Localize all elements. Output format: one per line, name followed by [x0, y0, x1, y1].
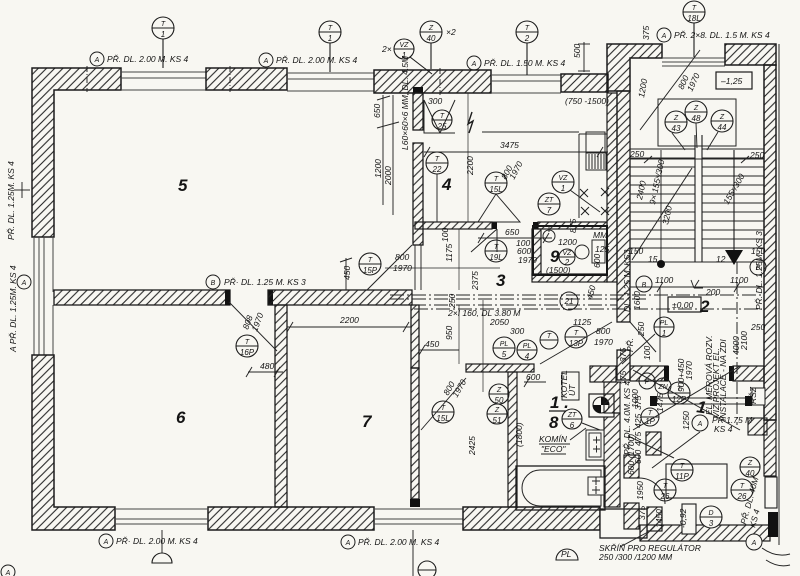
svg-text:T: T — [648, 410, 653, 417]
svg-text:A PŘ. DL. 1.25M. KS 4: A PŘ. DL. 1.25M. KS 4 — [8, 265, 18, 353]
svg-text:16P: 16P — [240, 348, 255, 357]
svg-text:425: 425 — [633, 414, 643, 428]
svg-text:Z: Z — [428, 25, 434, 32]
svg-text:2375: 2375 — [470, 271, 480, 291]
svg-text:3: 3 — [496, 271, 506, 290]
svg-text:250: 250 — [629, 149, 644, 159]
svg-text:PL: PL — [523, 343, 532, 350]
svg-text:7: 7 — [547, 206, 552, 215]
svg-text:18L: 18L — [687, 14, 700, 23]
svg-text:D: D — [708, 510, 713, 517]
svg-text:2: 2 — [524, 34, 530, 43]
svg-text:PL: PL — [660, 320, 669, 327]
svg-text:PŘ. DL. 1.50 M. KS 4: PŘ. DL. 1.50 M. KS 4 — [484, 58, 566, 68]
svg-text:PŘ. DL. 1.25M. KS 4: PŘ. DL. 1.25M. KS 4 — [6, 161, 16, 240]
svg-text:51: 51 — [493, 416, 502, 425]
svg-text:3: 3 — [709, 519, 714, 528]
svg-text:5: 5 — [502, 350, 507, 359]
svg-text:300: 300 — [428, 96, 442, 106]
svg-text:2200: 2200 — [339, 315, 359, 325]
svg-text:PŘ· DL. 1.25 M. KS 3: PŘ· DL. 1.25 M. KS 3 — [224, 277, 306, 287]
svg-text:1950: 1950 — [635, 481, 645, 500]
svg-text:15L: 15L — [436, 414, 449, 423]
svg-text:4: 4 — [441, 175, 452, 194]
svg-text:1600: 1600 — [632, 291, 642, 310]
svg-text:T: T — [547, 333, 552, 340]
svg-text:600: 600 — [526, 372, 540, 382]
svg-text:(750 -1500): (750 -1500) — [565, 96, 609, 106]
svg-text:B: B — [211, 280, 216, 287]
svg-text:T: T — [494, 244, 499, 251]
svg-text:Z: Z — [494, 407, 500, 414]
svg-text:375: 375 — [637, 506, 647, 520]
svg-text:T: T — [245, 339, 250, 346]
svg-text:100: 100 — [642, 346, 652, 360]
svg-text:15P: 15P — [363, 266, 378, 275]
svg-text:A: A — [471, 61, 477, 68]
svg-text:Z: Z — [719, 114, 725, 121]
svg-text:ZT: ZT — [567, 412, 577, 419]
svg-text:6: 6 — [570, 421, 575, 430]
svg-text:2×: 2× — [381, 44, 392, 54]
svg-text:375: 375 — [618, 348, 628, 362]
svg-text:A: A — [661, 33, 667, 40]
svg-text:T: T — [574, 330, 579, 337]
svg-text:PŘ. DL. 2.00 M. KS 4: PŘ. DL. 2.00 M. KS 4 — [358, 537, 440, 547]
svg-text:1250: 1250 — [681, 411, 691, 430]
svg-text:VZ: VZ — [563, 250, 573, 257]
svg-text:A: A — [5, 570, 11, 576]
svg-text:T: T — [161, 21, 166, 28]
svg-text:125: 125 — [595, 244, 609, 254]
svg-text:1450: 1450 — [654, 509, 664, 528]
svg-text:450: 450 — [342, 266, 352, 280]
svg-text:2050: 2050 — [489, 317, 509, 327]
svg-text:8: 8 — [549, 413, 559, 432]
svg-text:T: T — [740, 483, 745, 490]
svg-text:KS 4: KS 4 — [714, 424, 733, 434]
svg-text:Z: Z — [496, 387, 502, 394]
svg-text:21: 21 — [564, 297, 574, 306]
svg-text:A: A — [345, 540, 351, 547]
svg-text:"ECO": "ECO" — [541, 444, 566, 454]
svg-text:4: 4 — [525, 352, 530, 361]
svg-text:875: 875 — [568, 219, 578, 233]
svg-text:43: 43 — [672, 124, 681, 133]
svg-text:1200: 1200 — [558, 237, 577, 247]
svg-text:1175: 1175 — [444, 243, 454, 262]
svg-text:T: T — [440, 113, 445, 120]
svg-text:A: A — [94, 57, 100, 64]
svg-text:KOMÍN: KOMÍN — [539, 434, 568, 444]
svg-text:2425: 2425 — [467, 436, 477, 456]
svg-text:PŘ. DL. 1.25M. KS 3: PŘ. DL. 1.25M. KS 3 — [754, 231, 764, 310]
svg-text:2: 2 — [564, 258, 570, 267]
svg-text:26: 26 — [660, 492, 670, 501]
svg-text:-0,92: -0,92 — [678, 508, 688, 528]
svg-text:9: 9 — [550, 247, 560, 266]
svg-text:×2: ×2 — [446, 27, 456, 37]
svg-text:(1800): (1800) — [514, 422, 524, 447]
svg-text:T: T — [328, 25, 333, 32]
svg-text:7: 7 — [362, 412, 373, 431]
svg-text:Z: Z — [693, 105, 699, 112]
svg-text:1: 1 — [328, 34, 332, 43]
svg-text:19L: 19L — [489, 253, 502, 262]
svg-text:1970: 1970 — [518, 255, 537, 265]
svg-text:5: 5 — [178, 176, 188, 195]
svg-text:650: 650 — [505, 227, 519, 237]
svg-text:11P: 11P — [675, 472, 689, 481]
svg-text:40: 40 — [427, 34, 436, 43]
svg-text:1: 1 — [662, 329, 666, 338]
svg-text:100: 100 — [440, 228, 450, 242]
svg-text:DL. 1.25 M. KS3: DL. 1.25 M. KS3 — [622, 249, 632, 312]
svg-text:950: 950 — [444, 326, 454, 340]
svg-text:650: 650 — [372, 104, 382, 118]
svg-text:RŠZ: RŠZ — [748, 386, 758, 404]
svg-text:A: A — [263, 58, 269, 65]
svg-text:450: 450 — [425, 339, 439, 349]
svg-text:375: 375 — [633, 396, 643, 410]
svg-text:1100: 1100 — [730, 275, 749, 285]
svg-text:1: 1 — [561, 184, 565, 193]
svg-text:INSTALACE - NA ZDI: INSTALACE - NA ZDI — [718, 339, 728, 421]
svg-text:2×I 160, DL 3.80 M: 2×I 160, DL 3.80 M — [447, 308, 521, 318]
svg-text:PŘ. DL. 2.00 M. KS 4: PŘ. DL. 2.00 M. KS 4 — [107, 54, 189, 64]
svg-text:A: A — [697, 421, 703, 428]
svg-text:6: 6 — [176, 408, 186, 427]
svg-text:600: 600 — [592, 254, 602, 268]
svg-text:3475: 3475 — [500, 140, 519, 150]
svg-text:ÚT: ÚT — [567, 384, 577, 396]
svg-text:250: 250 — [749, 150, 764, 160]
svg-text:ZT: ZT — [544, 197, 554, 204]
svg-text:13P: 13P — [569, 339, 584, 348]
svg-text:T: T — [368, 257, 373, 264]
svg-text:15L: 15L — [489, 185, 502, 194]
svg-text:PL: PL — [561, 549, 572, 559]
svg-text:–1,25: –1,25 — [720, 76, 743, 86]
svg-text:12: 12 — [716, 254, 726, 264]
svg-text:2200: 2200 — [465, 156, 475, 176]
svg-text:50: 50 — [495, 396, 504, 405]
svg-text:VZ: VZ — [559, 175, 569, 182]
svg-text:15: 15 — [648, 254, 658, 264]
svg-text:2000: 2000 — [383, 166, 393, 186]
svg-text:44: 44 — [718, 123, 727, 132]
svg-text:1200: 1200 — [373, 159, 383, 178]
svg-text:150: 150 — [629, 246, 643, 256]
svg-text:PŘ. DL. 4.0M. KS 4: PŘ. DL. 4.0M. KS 4 — [622, 381, 632, 455]
svg-text:2100: 2100 — [739, 331, 749, 351]
svg-text:375: 375 — [641, 26, 651, 40]
svg-text:250: 250 — [447, 294, 457, 309]
svg-text:T: T — [525, 25, 530, 32]
svg-text:±0,00: ±0,00 — [672, 300, 693, 310]
svg-text:Z: Z — [673, 115, 679, 122]
svg-text:PŘ. DL. 2.00 M. KS 4: PŘ. DL. 2.00 M. KS 4 — [276, 55, 358, 65]
svg-text:A: A — [21, 280, 27, 287]
svg-text:L60×60×6 MM, DL. 4.5M: L60×60×6 MM, DL. 4.5M — [400, 55, 410, 150]
svg-text:VZ: VZ — [400, 42, 410, 49]
svg-text:22: 22 — [432, 165, 442, 174]
svg-text:1970: 1970 — [594, 337, 613, 347]
svg-text:480: 480 — [260, 361, 274, 371]
svg-text:250: 250 — [750, 322, 765, 332]
svg-text:Z: Z — [747, 460, 753, 467]
svg-text:T: T — [680, 463, 685, 470]
svg-text:T: T — [494, 176, 499, 183]
svg-text:B: B — [642, 282, 647, 289]
svg-text:1970: 1970 — [684, 361, 694, 380]
svg-text:48: 48 — [692, 114, 701, 123]
svg-text:500: 500 — [572, 44, 582, 58]
svg-text:T: T — [663, 483, 668, 490]
svg-text:PŘ· DL. 2.00 M. KS 4: PŘ· DL. 2.00 M. KS 4 — [116, 536, 198, 546]
svg-text:250 /300 /1200 MM: 250 /300 /1200 MM — [598, 552, 673, 562]
svg-text:P: P — [645, 379, 650, 386]
svg-text:200: 200 — [705, 287, 720, 297]
svg-text:MM: MM — [593, 230, 608, 240]
svg-text:PŘ. 2×8. DL. 1.5 M. KS 4: PŘ. 2×8. DL. 1.5 M. KS 4 — [674, 30, 770, 40]
svg-text:A: A — [103, 539, 109, 546]
svg-text:PL: PL — [500, 341, 509, 348]
svg-text:T: T — [692, 5, 697, 12]
svg-text:300: 300 — [510, 326, 524, 336]
svg-text:1100: 1100 — [655, 275, 674, 285]
svg-text:1: 1 — [161, 30, 165, 39]
svg-text:A: A — [751, 540, 757, 547]
svg-text:T: T — [435, 156, 440, 163]
